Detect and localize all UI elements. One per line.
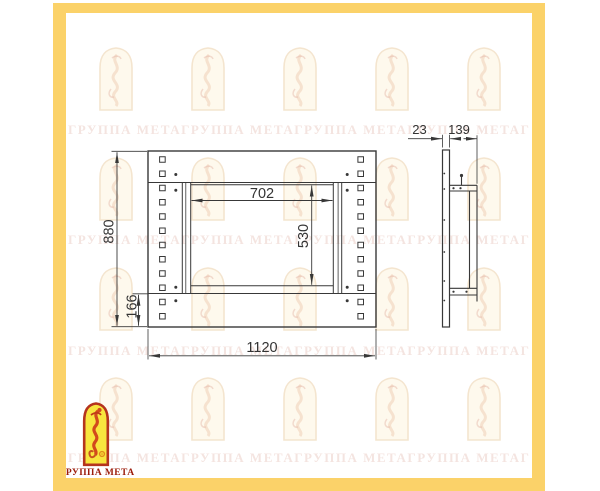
dim-opening-width: 702 (250, 186, 274, 202)
right-mullion (333, 183, 341, 294)
dim-bottom-rail-height: 166 (125, 294, 141, 318)
dim-overall-width: 1120 (246, 340, 277, 356)
dim-frame-depth: 139 (448, 122, 470, 137)
perforation-squares-right (358, 157, 364, 319)
top-pin-head (460, 174, 463, 177)
company-logo-emblem (82, 401, 110, 467)
extension-lines-side (443, 135, 478, 184)
front-view: 880 166 1120 702 530 (102, 151, 377, 360)
dim-opening-height: 530 (296, 224, 312, 248)
mount-frame-profile (450, 185, 478, 301)
dim-panel-thickness: 23 (412, 122, 426, 137)
rivet-dots-side (452, 187, 467, 293)
perforation-squares-left (160, 157, 166, 319)
panel-side-dots (443, 173, 445, 302)
drawing-sheet: ГРУППА МЕТАГРУППА МЕТАГРУППА МЕТАГРУППА … (0, 0, 600, 491)
side-view: 23 139 (408, 122, 477, 327)
left-mullion (182, 183, 190, 294)
dim-overall-height: 880 (102, 219, 118, 243)
company-logo-caption: ГРУППА МЕТА (58, 468, 136, 478)
